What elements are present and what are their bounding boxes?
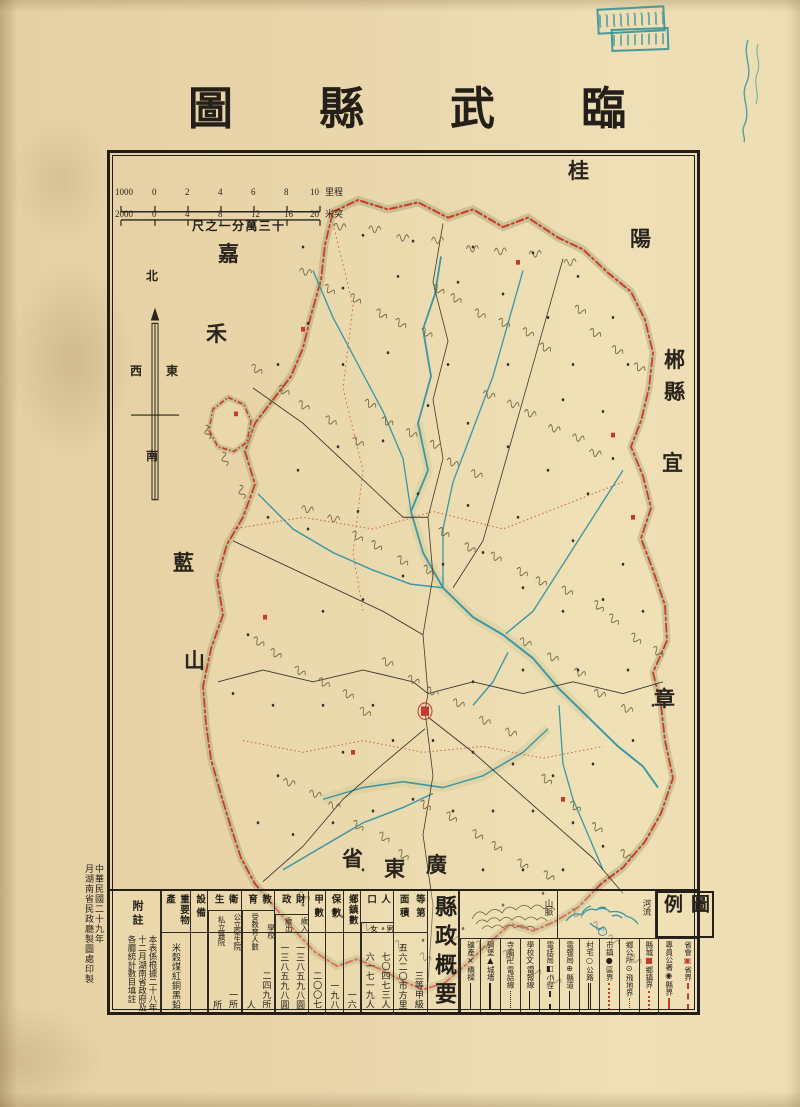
summary-value-財政-0: 一三八五九八圓 <box>295 943 305 1010</box>
scale-bottom-tick-2: 8 <box>218 210 223 219</box>
legend-item-電話局: 電話局◧小徑 <box>539 939 559 1012</box>
legend-boundary-label: 小徑 <box>546 974 554 989</box>
summary-value-衛生-1: 所 <box>212 1000 222 1010</box>
legend-symbol-礦產: × <box>467 956 474 965</box>
summary-value-重要物產-0: 米穀煤紅銅黑鉛 <box>171 943 181 1010</box>
legend-symbol-市鎮: ● <box>606 956 613 965</box>
map-title: 臨武縣圖 <box>188 84 626 136</box>
summary-group-甲數: 甲數二〇〇七 <box>308 891 325 1012</box>
legend-feature-label: 縣城 <box>645 941 653 956</box>
neighbor-label-嘉禾-1: 禾 <box>206 323 227 345</box>
summary-value-保數-0: 一九八 <box>329 981 339 1010</box>
scale-bottom-tick-1: 4 <box>185 210 190 219</box>
legend-line-sample <box>549 991 551 1011</box>
legend-boundary-label: 公路 <box>585 966 593 981</box>
legend-symbol-碉堡: ▲ <box>487 956 493 965</box>
ratio-char-0: 十 <box>272 217 284 234</box>
neighbor-label-廣東省-2: 省 <box>342 848 363 870</box>
legend-line-sample <box>608 983 610 1010</box>
scale-bottom-tick-5: 20 <box>310 210 319 219</box>
legend-line-sample <box>470 983 471 1010</box>
compass-south-label: 南 <box>146 450 158 462</box>
legend-item-寺廟: 寺廟卍電話線 <box>500 939 520 1012</box>
summary-sub-歲入: 歲入 <box>292 915 308 932</box>
scale-top-tick-1: 2 <box>185 188 190 197</box>
legend-line-sample <box>687 983 689 1010</box>
summary-group-name: 人口 <box>363 894 391 920</box>
summary-group-教育: 教育學校受教育人數二四九所人 <box>241 891 275 1012</box>
scale-ratio-label: 十三萬分一之尺 <box>192 217 284 234</box>
legend-line-sample <box>629 998 630 1010</box>
summary-value-財政-1: 一三八五九八圓 <box>279 943 289 1010</box>
summary-group-name: 財政 <box>278 894 306 912</box>
legend-item-市鎮: 市鎮●區界 <box>599 939 619 1012</box>
summary-group-name: 重要物產 <box>162 894 190 932</box>
neighbor-label-藍山-0: 藍 <box>173 552 194 574</box>
legend-river-sample: 河流 <box>558 891 655 938</box>
neighbor-label-宜章-0: 宜 <box>662 452 683 474</box>
summary-group-衛生: 衛生公立衛生院私立醫院一所所 <box>207 891 241 1012</box>
legend-feature-label: 寺廟 <box>506 941 514 956</box>
summary-value-人口-0: 七〇四七三人 <box>381 952 391 1009</box>
legend-boundary-label: 電話線 <box>506 966 514 989</box>
county-seat-marker <box>421 706 429 715</box>
bottom-panel: 附註 本表係根據二十八年十二月湖南省政府及各廳統計數目填註 等第三等甲級面積五六… <box>110 889 697 1012</box>
ratio-char-6: 尺 <box>192 217 204 234</box>
legend-feature-label: 礦產 <box>466 941 474 956</box>
summary-group-鄉鎮數: 鄉鎮數一六 <box>343 891 360 1012</box>
legend-feature-label: 專員公署 <box>665 941 673 971</box>
summary-group-name: 鄉鎮數 <box>345 894 359 926</box>
summary-sub-女: 女 <box>361 923 378 933</box>
map-frame: 附註 本表係根據二十八年十二月湖南省政府及各廳統計數目填註 等第三等甲級面積五六… <box>107 150 700 1015</box>
legend-mountain-label: 山脈 <box>543 899 555 916</box>
legend-boundary-label: 飛地界 <box>625 974 633 997</box>
legend-symbol-鄉公所: ⊙ <box>626 964 633 973</box>
legend-feature-label: 碉堡 <box>486 941 494 956</box>
compass-east-label: 東 <box>166 365 178 377</box>
legend-boundary-label: 電報線 <box>526 966 534 989</box>
legend-top-band: 山脈 河流 圖例 <box>460 891 697 939</box>
summary-group-人口: 人口男女七〇四七三人六一七一九人 <box>360 891 394 1012</box>
legend-boundary-label: 鄉鎮界 <box>645 966 653 989</box>
legend-feature-label: 市鎮 <box>605 941 613 956</box>
legend-item-縣城: 縣城■鄉鎮界 <box>639 939 659 1012</box>
summary-group-財政: 財政歲入歲出一三八五九八圓一三八五九八圓 <box>274 891 308 1012</box>
imprint: 中華民國二十九年月湖南省民政廳製圖處印製 <box>84 864 104 984</box>
ratio-char-3: 分 <box>232 217 244 234</box>
legend-line-sample <box>668 998 670 1010</box>
scale-top-tick-3: 6 <box>251 188 256 197</box>
legend-mountain-sample: 山脈 <box>460 891 558 938</box>
legend-item-專員公署: 專員公署◉縣界 <box>658 939 678 1012</box>
summary-value-人口-1: 六一七一九人 <box>365 952 375 1009</box>
compass-rose <box>131 309 179 499</box>
legend-line-sample <box>569 991 570 1011</box>
legend-boundary-label: 區界 <box>605 966 613 981</box>
ratio-char-2: 萬 <box>245 217 257 234</box>
summary-value-衛生-0: 一所 <box>228 990 238 1009</box>
legend-symbol-寺廟: 卍 <box>506 956 514 965</box>
note-line-2: 各廳統計數目填註 <box>127 935 137 1012</box>
summary-value-甲數-0: 二〇〇七 <box>312 971 322 1009</box>
summary-group-name: 保數 <box>327 894 341 921</box>
summary-group-name: 教育 <box>244 894 272 908</box>
legend-item-碉堡: 碉堡▲城墻 <box>480 939 500 1012</box>
scale-top-tick-4: 8 <box>284 188 289 197</box>
legend-item-省會: 省會▣省界 <box>678 939 697 1012</box>
legend-feature-label: 電話局 <box>546 941 554 964</box>
legend-boundary-label: 城墻 <box>486 966 494 981</box>
summary-group-name: 等第 <box>412 894 426 921</box>
legend-boundary-label: 縣界 <box>665 981 673 996</box>
legend-symbol-專員公署: ◉ <box>665 971 672 980</box>
summary-group-name: 設備 <box>192 894 206 921</box>
note-line-1: 十二月湖南省政府及 <box>137 935 147 1012</box>
legend-symbol-縣城: ■ <box>645 956 653 965</box>
legend-item-村宅: 村宅○公路 <box>579 939 599 1012</box>
summary-group-name: 面積 <box>396 894 410 921</box>
neighbor-label-郴縣-0: 郴 <box>664 349 685 371</box>
ratio-char-5: 之 <box>205 217 217 234</box>
scale-top-tick-5: 10 <box>310 188 319 197</box>
scale-bottom-tick-4: 16 <box>284 210 293 219</box>
neighbor-label-嘉禾-0: 嘉 <box>218 243 239 265</box>
ratio-char-4: 一 <box>219 217 231 234</box>
handwritten-accession-mark <box>724 36 772 146</box>
legend-symbol-電話局: ◧ <box>546 964 554 973</box>
legend-item-電報局: 電報局⊕縣道 <box>559 939 579 1012</box>
legend: 山脈 河流 圖例 <box>459 891 697 1012</box>
scale-bottom-tick-3: 12 <box>251 210 260 219</box>
notes-cell: 附註 本表係根據二十八年十二月湖南省政府及各廳統計數目填註 <box>110 891 161 1012</box>
title-char-1: 武 <box>450 84 495 136</box>
legend-feature-label: 電報局 <box>566 941 574 964</box>
scale-bottom-unit: 米突 <box>325 210 343 219</box>
legend-line-sample <box>588 983 591 1010</box>
legend-item-學校: 學校文電報線 <box>520 939 540 1012</box>
scanned-map-sheet: 臨武縣圖 <box>0 0 800 1107</box>
summary-group-設備: 設備 <box>190 891 207 1012</box>
title-char-2: 縣 <box>319 84 364 136</box>
title-char-0: 臨 <box>581 84 626 136</box>
legend-columns: 省會▣省界專員公署◉縣界縣城■鄉鎮界鄉公所⊙飛地界市鎮●區界村宅○公路電報局⊕縣… <box>460 939 697 1012</box>
map-canvas <box>110 153 697 1012</box>
legend-river-label: 河流 <box>641 899 653 916</box>
neighbor-label-桂陽-1: 陽 <box>630 228 651 250</box>
legend-title-box: 圖例 <box>655 891 697 938</box>
legend-line-sample <box>648 991 650 1011</box>
summary-group-重要物產: 重要物產米穀煤紅銅黑鉛 <box>161 891 190 1012</box>
ratio-char-1: 三 <box>259 217 271 234</box>
summary-group-name: 甲數 <box>310 894 324 921</box>
summary-group-name: 衛生 <box>211 894 239 908</box>
summary-group-等第: 等第三等甲級 <box>411 891 427 1012</box>
summary-value-等第-0: 三等甲級 <box>414 971 424 1009</box>
neighbor-label-廣東省-1: 東 <box>384 858 405 880</box>
summary-sub-男: 男 <box>378 923 394 933</box>
summary-group-面積: 面積五六二〇市方里 <box>393 891 410 1012</box>
neighbor-label-宜章-1: 章 <box>654 688 675 710</box>
library-stamp-2 <box>611 27 670 52</box>
legend-feature-label: 村宅 <box>585 941 593 956</box>
legend-symbol-學校: 文 <box>526 956 534 965</box>
title-char-3: 圖 <box>188 84 233 136</box>
note-line-0: 本表係根據二十八年 <box>148 935 158 1012</box>
scale-bottom-tick-0: 0 <box>152 210 157 219</box>
compass-north-label: 北 <box>146 270 158 282</box>
legend-boundary-label: 橋樑 <box>466 966 474 981</box>
legend-symbol-省會: ▣ <box>684 956 692 965</box>
summary-value-面積-0: 五六二〇市方里 <box>398 943 408 1010</box>
summary-value-教育-1: 人 <box>246 1000 256 1010</box>
notes-title: 附註 <box>129 900 145 928</box>
legend-line-sample <box>489 983 491 1010</box>
legend-feature-label: 鄉公所 <box>625 941 633 964</box>
legend-symbol-電報局: ⊕ <box>566 964 573 973</box>
neighbor-label-郴縣-1: 縣 <box>664 381 685 403</box>
notes-body: 本表係根據二十八年十二月湖南省政府及各廳統計數目填註 <box>126 935 158 1012</box>
scale-top-tick-2: 4 <box>218 188 223 197</box>
scale-bottom-left: 2000 <box>115 210 133 219</box>
neighbor-label-藍山-1: 山 <box>184 650 205 672</box>
summary-group-保數: 保數一九八 <box>325 891 342 1012</box>
legend-boundary-label: 縣道 <box>566 974 574 989</box>
summary-title: 縣政概要 <box>427 891 459 1012</box>
legend-feature-label: 學校 <box>526 941 534 956</box>
county-summary-table: 等第三等甲級面積五六二〇市方里人口男女七〇四七三人六一七一九人鄉鎮數一六保數一九… <box>161 891 427 1012</box>
scale-top-tick-0: 0 <box>152 188 157 197</box>
legend-symbol-村宅: ○ <box>586 956 593 965</box>
legend-feature-label: 省會 <box>684 941 692 956</box>
legend-line-sample <box>529 991 530 1011</box>
legend-item-礦產: 礦產×橋樑 <box>460 939 480 1012</box>
legend-line-sample <box>510 991 511 1011</box>
legend-item-鄉公所: 鄉公所⊙飛地界 <box>619 939 639 1012</box>
scale-top-left: 1000 <box>115 188 133 197</box>
summary-value-教育-0: 二四九所 <box>262 971 272 1009</box>
scale-top-unit: 里程 <box>325 188 343 197</box>
legend-boundary-label: 省界 <box>684 966 692 981</box>
summary-value-鄉鎮數-0: 一六 <box>347 990 357 1009</box>
compass-west-label: 西 <box>130 365 142 377</box>
summary-sub-歲出: 歲出 <box>275 915 292 932</box>
neighbor-label-桂陽-0: 桂 <box>568 160 589 182</box>
neighbor-label-廣東省-0: 廣 <box>426 854 447 876</box>
